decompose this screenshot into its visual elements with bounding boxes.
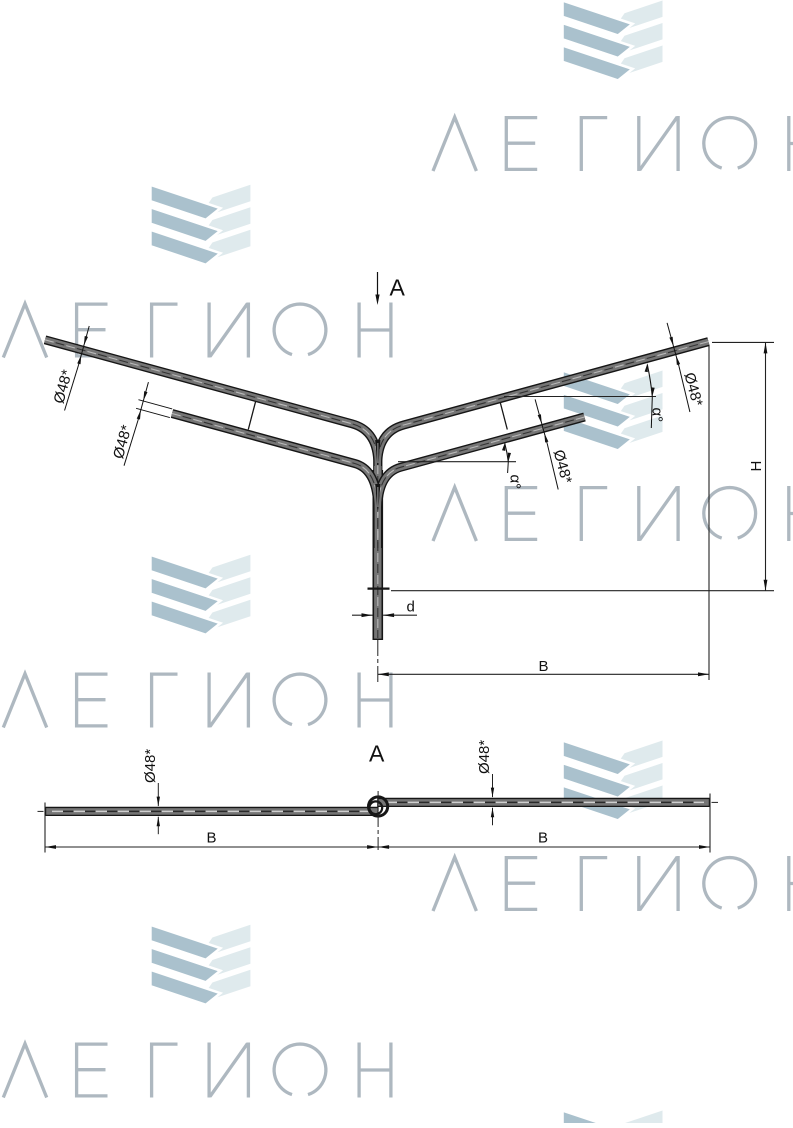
svg-text:d: d — [407, 599, 415, 616]
svg-text:Ø48*: Ø48* — [142, 749, 159, 783]
svg-text:A: A — [369, 741, 385, 767]
svg-text:B: B — [539, 658, 549, 675]
svg-text:Ø48*: Ø48* — [476, 740, 493, 774]
svg-text:B: B — [538, 830, 548, 847]
svg-text:H: H — [748, 461, 765, 472]
svg-text:B: B — [207, 830, 217, 847]
svg-text:A: A — [390, 274, 406, 300]
svg-text:α°: α° — [649, 408, 666, 423]
svg-text:α°: α° — [507, 475, 524, 490]
